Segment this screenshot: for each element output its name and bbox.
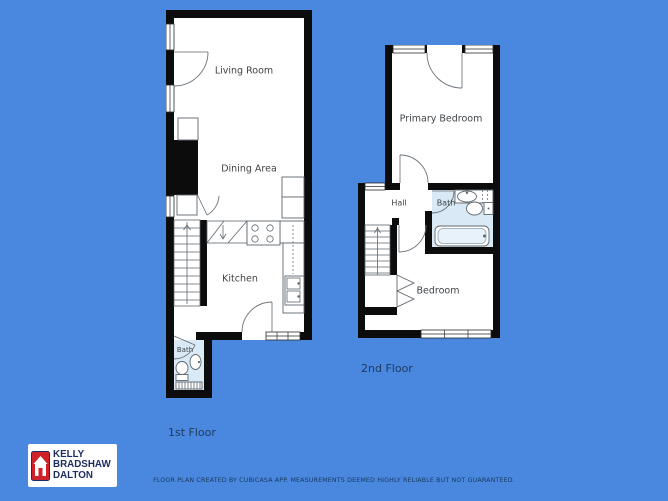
toilet-symbol (467, 202, 494, 215)
kelly-bradshaw-dalton-logo: KELLY BRADSHAW DALTON (28, 444, 117, 487)
chimney-block (174, 140, 198, 195)
first-floor-caption: 1st Floor (168, 426, 216, 439)
stove-symbol (247, 221, 280, 245)
logo-line-3: DALTON (53, 471, 111, 482)
room-label-bedroom: Bedroom (417, 286, 460, 297)
sink-symbol (285, 276, 304, 305)
floorplan-page: Living Room Dining Area Kitchen Bath Pri… (0, 0, 668, 501)
disclaimer-text: FLOOR PLAN CREATED BY CUBICASA APP. MEAS… (153, 477, 515, 484)
room-label-hall: Hall (391, 199, 406, 208)
room-label-dining-area: Dining Area (221, 164, 277, 175)
vanity-sink-symbol (455, 190, 493, 203)
house-icon (31, 451, 50, 481)
second-floor-caption: 2nd Floor (361, 362, 413, 375)
sink-symbol (190, 355, 201, 370)
bathtub-symbol (435, 226, 489, 246)
room-label-living-room: Living Room (215, 66, 273, 77)
room-label-bath-2nd: Bath (437, 199, 456, 208)
radiator-symbol (176, 382, 202, 389)
room-label-primary-bedroom: Primary Bedroom (400, 114, 483, 125)
toilet-symbol (176, 362, 188, 381)
logo-wordmark: KELLY BRADSHAW DALTON (53, 450, 111, 482)
room-label-bath-1st: Bath (177, 346, 193, 354)
room-label-kitchen: Kitchen (222, 274, 258, 285)
